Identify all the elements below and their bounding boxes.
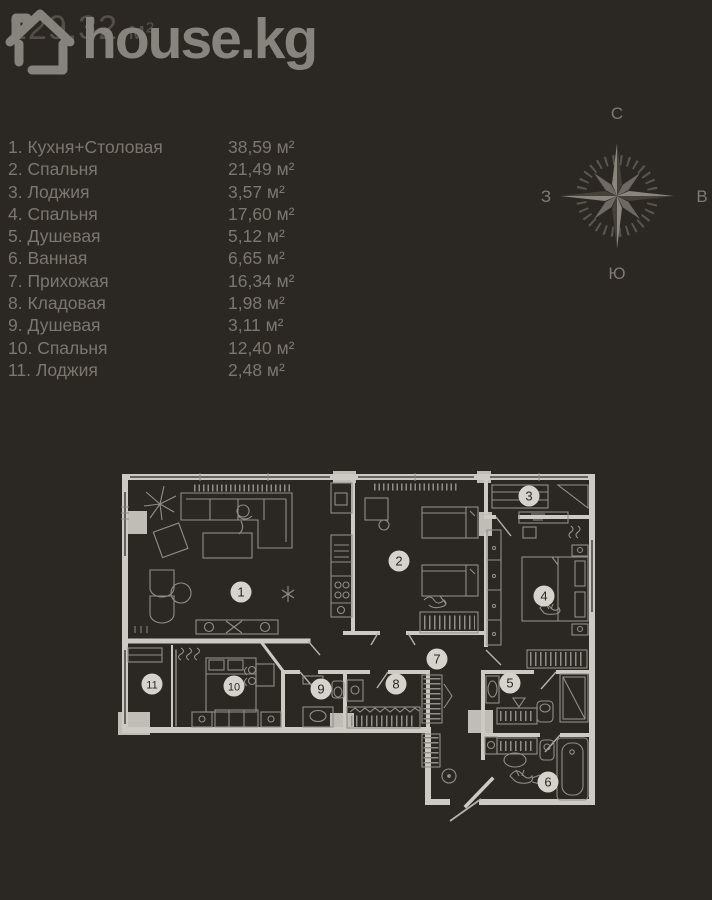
room-marker-number: 4 (540, 589, 547, 604)
room-list-item: 6. Ванная6,65 м² (8, 247, 295, 269)
room-area: 5,12 м² (228, 225, 285, 247)
room-list-item: 5. Душевая5,12 м² (8, 225, 295, 247)
compass-south-label: Ю (608, 264, 625, 283)
room-area: 17,60 м² (228, 203, 295, 225)
room-list-item: 9. Душевая3,11 м² (8, 314, 295, 336)
room-marker-number: 10 (228, 682, 240, 694)
room-list-item: 2. Спальня21,49 м² (8, 158, 295, 180)
room-name: 9. Душевая (8, 314, 228, 336)
room-area: 16,34 м² (228, 270, 295, 292)
room-list: 1. Кухня+Столовая38,59 м²2. Спальня21,49… (8, 136, 295, 381)
compass-west-label: З (541, 187, 551, 206)
room-marker-number: 7 (433, 652, 440, 667)
room-name: 3. Лоджия (8, 181, 228, 203)
room-marker-number: 5 (506, 676, 513, 691)
room-name: 10. Спальня (8, 337, 228, 359)
room-marker-number: 1 (237, 585, 244, 600)
room-list-item: 3. Лоджия3,57 м² (8, 181, 295, 203)
room-marker-number: 8 (392, 677, 399, 692)
room-name: 6. Ванная (8, 247, 228, 269)
room-name: 7. Прихожая (8, 270, 228, 292)
room-name: 5. Душевая (8, 225, 228, 247)
room-marker-number: 2 (395, 554, 402, 569)
room-list-item: 11. Лоджия2,48 м² (8, 359, 295, 381)
room-list-item: 10. Спальня12,40 м² (8, 337, 295, 359)
room-area: 1,98 м² (228, 292, 285, 314)
room-name: 11. Лоджия (8, 359, 228, 381)
room-area: 21,49 м² (228, 158, 295, 180)
room-name: 2. Спальня (8, 158, 228, 180)
room-marker-number: 11 (146, 680, 157, 692)
window-ticks (121, 473, 539, 633)
room-name: 4. Спальня (8, 203, 228, 225)
room-name: 8. Кладовая (8, 292, 228, 314)
room-marker-number: 3 (525, 489, 532, 504)
compass-north-label: С (611, 104, 623, 123)
room-list-item: 1. Кухня+Столовая38,59 м² (8, 136, 295, 158)
room-name: 1. Кухня+Столовая (8, 136, 228, 158)
room-marker-number: 9 (317, 682, 324, 697)
compass-east-label: В (696, 187, 707, 206)
room-area: 3,11 м² (228, 314, 283, 336)
room-area: 12,40 м² (228, 337, 295, 359)
interior-walls (125, 477, 592, 806)
room-area: 6,65 м² (228, 247, 285, 269)
compass-rose: С В Ю З (541, 104, 708, 283)
room-list-item: 8. Кладовая1,98 м² (8, 292, 295, 314)
room-area: 38,59 м² (228, 136, 295, 158)
room-list-item: 4. Спальня17,60 м² (8, 203, 295, 225)
room-area: 3,57 м² (228, 181, 285, 203)
floor-plan: С В Ю З (0, 0, 712, 900)
room-area: 2,48 м² (228, 359, 285, 381)
room-marker-number: 6 (544, 775, 551, 790)
room-list-item: 7. Прихожая16,34 м² (8, 270, 295, 292)
